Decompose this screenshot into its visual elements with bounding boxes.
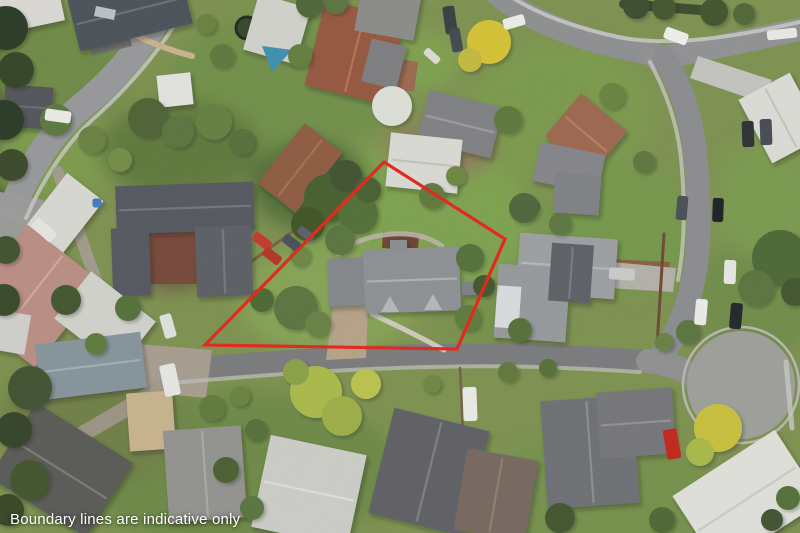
aerial-photo-canvas <box>0 0 800 533</box>
disclaimer-text: Boundary lines are indicative only <box>10 511 240 528</box>
aerial-photo: Boundary lines are indicative only <box>0 0 800 533</box>
photo-grain <box>0 0 800 533</box>
